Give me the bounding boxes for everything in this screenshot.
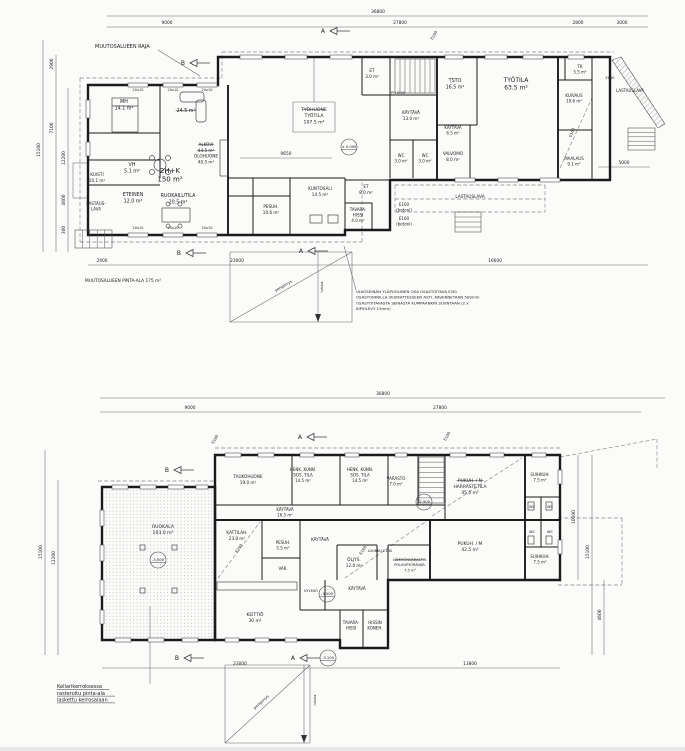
svg-text:-3.000: -3.000: [321, 592, 334, 596]
svg-text:20x10: 20x10: [133, 226, 144, 230]
room-label: 20x10: [202, 226, 213, 230]
room-label: LASTAUSLAVA: [455, 194, 484, 199]
window: [148, 638, 164, 642]
dimension-label: 4600: [597, 609, 603, 620]
window: [86, 142, 90, 156]
window: [330, 55, 352, 59]
room-label: LASTAUSLAVA: [616, 88, 644, 93]
window: [196, 485, 208, 489]
window: [498, 178, 518, 182]
drawing-sheet: MH14.1 m²VH5.1 m²KUISTI10.1 m²ETEINEN12.…: [0, 0, 685, 747]
window: [182, 638, 198, 642]
dimension-label: 13800: [463, 661, 477, 667]
room-label: VARASTO7.0 m²: [387, 476, 406, 487]
dimension-label: 27800: [393, 20, 407, 26]
window: [100, 545, 104, 561]
dimension-label: 12200: [51, 551, 57, 565]
svg-text:20x10: 20x10: [168, 226, 179, 230]
svg-text:LASTAUSLAVA: LASTAUSLAVA: [455, 194, 484, 199]
svg-text:MUUTOSALUEEN RAJA: MUUTOSALUEEN RAJA: [95, 44, 150, 50]
window: [558, 470, 562, 484]
room-label: TYÖTILA63.5 m²: [503, 77, 530, 92]
window: [225, 453, 241, 457]
room-label: 20x10: [168, 88, 179, 92]
window: [100, 510, 104, 526]
room-label: HISSINKONEH.: [367, 620, 382, 631]
window: [197, 233, 217, 237]
svg-text:-2.900: -2.900: [418, 500, 431, 504]
room-label: KÄYTÄVÄ6.5 m²: [444, 125, 462, 136]
room-label: KEITTIÖ30 m²: [247, 611, 265, 624]
svg-text:TYÖTILA63.5 m²: TYÖTILA63.5 m²: [503, 77, 530, 92]
window: [128, 233, 148, 237]
window: [445, 55, 463, 59]
svg-text:KEITTIÖ30 m²: KEITTIÖ30 m²: [247, 611, 265, 624]
svg-text:PESUH.5.5 m²: PESUH.5.5 m²: [276, 540, 291, 551]
svg-text:± 0.000: ± 0.000: [342, 145, 357, 149]
room-label: KÄYTÄVÄ13.0 m²: [402, 110, 420, 121]
room-label: PO EI30: [391, 91, 406, 95]
dimension-label: 23000: [233, 661, 247, 667]
window: [115, 638, 131, 642]
window: [163, 83, 183, 87]
svg-text:ÖLJYS.12.0 m²: ÖLJYS.12.0 m²: [346, 557, 363, 568]
room-label: KYLMIÖ: [304, 588, 318, 593]
room-label: 2H+K150 m²: [157, 167, 182, 184]
room-label: 20x10: [133, 226, 144, 230]
svg-text:-3.000: -3.000: [152, 558, 165, 562]
svg-text:MUUTOSALUEEN PINTA-ALA 175 m²: MUUTOSALUEEN PINTA-ALA 175 m²: [85, 278, 161, 284]
window: [225, 638, 239, 642]
rastered-floor-area: [104, 489, 213, 638]
dimension-label: 2900: [49, 58, 55, 69]
svg-text:KUISTI10.1 m²: KUISTI10.1 m²: [89, 172, 106, 183]
window: [258, 453, 274, 457]
dimension-label: 36800: [376, 391, 390, 397]
svg-text:KÄYTÄVÄ: KÄYTÄVÄ: [348, 586, 366, 591]
window: [100, 610, 104, 624]
room-label: KATTILAH.23.0 m²: [226, 530, 247, 541]
note-text: MUUTOSALUEEN RAJA: [95, 44, 150, 50]
svg-text:KUIVAUS10.6 m²: KUIVAUS10.6 m²: [565, 93, 583, 104]
room-label: WC: [529, 505, 536, 509]
window: [523, 55, 543, 59]
dimension-label: 16600: [488, 258, 502, 264]
dimension-label: 15100: [36, 143, 42, 157]
room-label: KÄYTÄVÄ: [348, 586, 366, 591]
dimension-label: 2400: [97, 258, 108, 264]
svg-text:HISSINKONEH.: HISSINKONEH.: [367, 620, 382, 631]
svg-text:KÄYTÄVÄ16.5 m²: KÄYTÄVÄ16.5 m²: [276, 507, 294, 518]
svg-text:WC: WC: [529, 505, 536, 509]
dimension-label: 10500: [571, 510, 577, 524]
dimension-label: 9650: [281, 151, 292, 157]
window: [300, 453, 314, 457]
annotation-label: luiska: [312, 695, 317, 706]
window: [532, 453, 546, 457]
svg-text:KYLMIÖ: KYLMIÖ: [304, 588, 318, 593]
window: [540, 178, 560, 182]
svg-text:VARASTO7.0 m²: VARASTO7.0 m²: [387, 476, 406, 487]
room-label: EI 60: [605, 76, 615, 80]
dimension-label: 36800: [371, 9, 385, 15]
window: [255, 638, 269, 642]
room-label: LUUKKU E160: [368, 549, 393, 553]
dimension-label: 2800: [573, 20, 584, 26]
window: [168, 485, 184, 489]
window: [163, 233, 183, 237]
window: [558, 540, 562, 554]
svg-text:20x10: 20x10: [133, 88, 144, 92]
svg-text:LASTAUSLAVA: LASTAUSLAVA: [616, 88, 644, 93]
svg-text:VAR.: VAR.: [278, 566, 287, 571]
svg-text:-3.100: -3.100: [322, 656, 335, 660]
svg-text:KÄYTÄVÄ13.0 m²: KÄYTÄVÄ13.0 m²: [402, 110, 420, 121]
window: [128, 83, 148, 87]
room-label: VAR.: [278, 566, 287, 571]
note-text: MUUTOSALUEEN PINTA-ALA 175 m²: [85, 278, 161, 284]
window: [455, 178, 475, 182]
dimension-label: 27800: [433, 405, 447, 411]
window: [100, 580, 104, 596]
window: [285, 55, 307, 59]
room-label: 20x10: [168, 226, 179, 230]
svg-text:B: B: [165, 467, 169, 474]
svg-text:B: B: [181, 60, 185, 67]
room-label: TYÖHUONETYÖTILA107.5 m²: [300, 106, 327, 125]
room-label: PESUH.5.5 m²: [276, 540, 291, 551]
room-label: KUISTI10.1 m²: [89, 172, 106, 183]
dimension-label: 9000: [162, 20, 173, 26]
svg-text:WC: WC: [547, 530, 554, 534]
svg-text:TYÖHUONETYÖTILA107.5 m²: TYÖHUONETYÖTILA107.5 m²: [300, 106, 327, 125]
svg-text:20x10: 20x10: [202, 88, 213, 92]
svg-text:PESUH.10.6 m²: PESUH.10.6 m²: [263, 204, 280, 215]
room-label: WC: [547, 505, 554, 509]
dimension-label: 3000: [617, 20, 628, 26]
svg-text:LUUKKU E160: LUUKKU E160: [368, 549, 393, 553]
dimension-label: 15100: [585, 545, 591, 559]
architectural-floor-plans: MH14.1 m²VH5.1 m²KUISTI10.1 m²ETEINEN12.…: [0, 0, 685, 747]
window: [395, 453, 407, 457]
window: [140, 485, 156, 489]
window: [450, 453, 466, 457]
svg-text:Kellarikerroksessarasteroitu p: Kellarikerroksessarasteroitu pinta-alala…: [57, 684, 108, 704]
dimension-label: 23000: [230, 258, 244, 264]
svg-text:WC: WC: [547, 505, 554, 509]
window: [240, 55, 262, 59]
svg-text:B: B: [177, 250, 181, 257]
dimension-label: 4600: [61, 194, 67, 205]
svg-text:2H+K150 m²: 2H+K150 m²: [157, 167, 182, 184]
svg-text:20x10: 20x10: [202, 226, 213, 230]
svg-text:KÄYTÄVÄ: KÄYTÄVÄ: [311, 537, 329, 542]
dimension-label: 12200: [61, 151, 67, 165]
window: [485, 55, 507, 59]
room-label: WC: [547, 530, 554, 534]
window: [86, 100, 90, 118]
room-label: 24.5 m²: [176, 108, 197, 114]
svg-text:B: B: [175, 655, 179, 662]
svg-text:20x10: 20x10: [168, 88, 179, 92]
svg-text:KATTILAH.23.0 m²: KATTILAH.23.0 m²: [226, 530, 247, 541]
room-label: 20x10: [202, 88, 213, 92]
room-label: KÄYTÄVÄ16.5 m²: [276, 507, 294, 518]
window: [112, 485, 128, 489]
svg-text:24.5 m²: 24.5 m²: [177, 108, 196, 114]
room-label: WC: [529, 530, 536, 534]
room-label: 20x10: [133, 88, 144, 92]
dimension-label: 300: [61, 226, 67, 234]
window: [490, 453, 504, 457]
window: [568, 55, 584, 59]
window: [345, 453, 359, 457]
svg-text:EI 60: EI 60: [605, 76, 615, 80]
svg-text:KÄYTÄVÄ6.5 m²: KÄYTÄVÄ6.5 m²: [444, 125, 462, 136]
dimension-label: 15100: [38, 545, 44, 559]
dimension-label: 9000: [185, 405, 196, 411]
svg-text:PO EI30: PO EI30: [391, 91, 406, 95]
room-label: KUIVAUS10.6 m²: [565, 93, 583, 104]
room-label: KÄYTÄVÄ: [311, 537, 329, 542]
room-label: PESUH.10.6 m²: [263, 204, 280, 215]
room-label: ÖLJYS.12.0 m²: [346, 557, 363, 568]
dimension-label: 5000: [619, 160, 630, 166]
window: [197, 83, 217, 87]
svg-text:WC: WC: [529, 530, 536, 534]
window: [285, 638, 297, 642]
annotation-label: luiska: [319, 282, 324, 293]
dimension-label: 7100: [49, 122, 55, 133]
